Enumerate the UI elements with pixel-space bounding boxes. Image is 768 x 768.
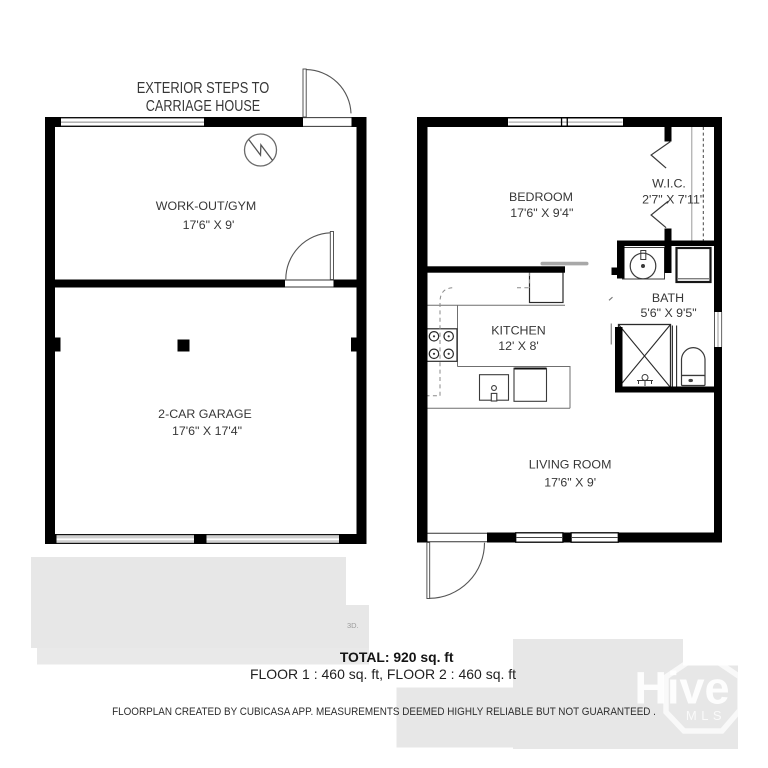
svg-text:EXTERIOR STEPS TO: EXTERIOR STEPS TO xyxy=(137,80,270,98)
svg-text:17'6" X 17'4": 17'6" X 17'4" xyxy=(172,424,242,438)
svg-text:12' X 8': 12' X 8' xyxy=(498,339,539,353)
svg-text:5'6" X 9'5": 5'6" X 9'5" xyxy=(640,306,696,320)
svg-text:17'6" X 9'4": 17'6" X 9'4" xyxy=(510,206,573,220)
svg-text:3D.: 3D. xyxy=(347,621,359,630)
svg-text:MLS: MLS xyxy=(686,708,726,723)
svg-text:TOTAL: 920 sq. ft: TOTAL: 920 sq. ft xyxy=(340,649,454,665)
svg-text:FLOORPLAN CREATED BY CUBICASA: FLOORPLAN CREATED BY CUBICASA APP. MEASU… xyxy=(112,707,656,719)
svg-text:BEDROOM: BEDROOM xyxy=(509,190,573,204)
svg-text:CARRIAGE HOUSE: CARRIAGE HOUSE xyxy=(146,98,260,116)
svg-text:LIVING ROOM: LIVING ROOM xyxy=(529,458,612,472)
svg-text:KITCHEN: KITCHEN xyxy=(491,324,545,338)
svg-text:2-CAR GARAGE: 2-CAR GARAGE xyxy=(158,407,252,421)
svg-text:17'6" X 9': 17'6" X 9' xyxy=(183,218,235,232)
svg-text:WORK-OUT/GYM: WORK-OUT/GYM xyxy=(156,199,257,213)
svg-text:17'6" X 9': 17'6" X 9' xyxy=(544,475,596,489)
svg-text:FLOOR 1 : 460 sq. ft, FLOOR 2: FLOOR 1 : 460 sq. ft, FLOOR 2 : 460 sq. … xyxy=(250,666,516,682)
svg-text:BATH: BATH xyxy=(652,291,684,305)
svg-text:2'7" X 7'11": 2'7" X 7'11" xyxy=(642,193,704,207)
svg-text:W.I.C.: W.I.C. xyxy=(652,176,686,190)
